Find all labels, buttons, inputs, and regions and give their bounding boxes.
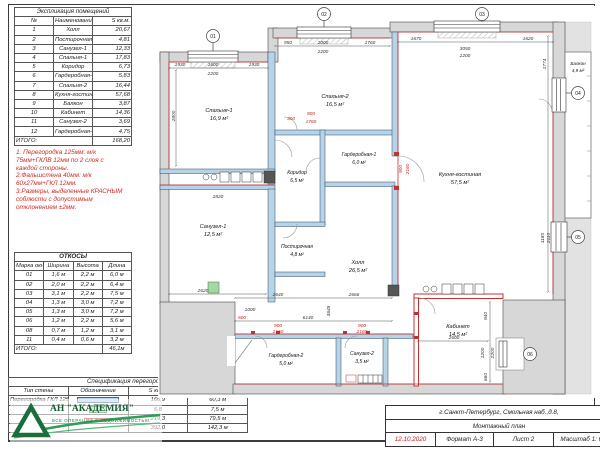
table-row: 2Постирочная4,81 (15, 35, 132, 44)
table-total-row: ИТОГО: 46,1м (15, 344, 132, 353)
svg-text:1180: 1180 (540, 233, 546, 244)
svg-text:Коридор: Коридор (287, 170, 307, 176)
svg-text:1930: 1930 (175, 62, 186, 68)
note-line: соблюсти с допустимым (16, 196, 162, 204)
svg-text:300: 300 (287, 116, 295, 122)
svg-text:26,5 м²: 26,5 м² (348, 268, 368, 274)
svg-text:3645: 3645 (326, 305, 332, 316)
drawing-sheet: { "explication": { "title": "Экспликация… (0, 0, 600, 450)
table-title-row: Экспликация помещений (15, 8, 132, 17)
svg-text:1620: 1620 (523, 36, 534, 42)
svg-text:500: 500 (238, 315, 246, 321)
title-block-date: 12.10.2020 (386, 433, 436, 446)
svg-text:2160: 2160 (272, 329, 284, 335)
title-block-sheet: Лист 2 (494, 433, 554, 446)
svg-text:06: 06 (527, 352, 533, 358)
svg-text:2110: 2110 (546, 233, 552, 245)
window-03 (434, 21, 500, 32)
svg-text:2160: 2160 (405, 163, 411, 175)
note-line: 60х27мм+ГКЛ 12мм. (16, 180, 162, 188)
svg-text:4,8 м²: 4,8 м² (290, 252, 304, 258)
note-line: 2.Фальшстена 40мм: м/к (16, 172, 162, 180)
note-line: каждой стороны. (16, 165, 162, 173)
svg-text:2160: 2160 (356, 329, 368, 335)
svg-text:2200: 2200 (317, 49, 329, 55)
table-row: 4Спальня-117,83 (15, 53, 132, 62)
svg-text:1760: 1760 (306, 119, 317, 125)
svg-text:Спальня-1: Спальня-1 (205, 108, 232, 114)
svg-text:2640: 2640 (272, 292, 284, 298)
svg-text:6,0 м²: 6,0 м² (352, 160, 366, 166)
svg-text:1600: 1600 (208, 62, 219, 68)
svg-text:04: 04 (575, 91, 581, 97)
agency-logo: АН "АКАДЕМИЯ" ВСЕ ОПЕРАЦИИ С НЕДВИЖИМОСТ… (10, 399, 162, 442)
svg-text:16,9 м²: 16,9 м² (210, 116, 229, 122)
note-line: 1. Перегородка 125мм: м/к (16, 149, 162, 157)
svg-text:3,5 м²: 3,5 м² (355, 359, 369, 365)
svg-text:Гардеробная-2: Гардеробная-2 (269, 353, 304, 359)
table-row: 011,6 м2,2 м6,0 м (15, 271, 132, 280)
table-row: 6Гардеробная-15,83 (15, 72, 132, 81)
svg-text:Постирочная: Постирочная (281, 244, 313, 250)
slopes-title: ОТКОСЫ (15, 253, 132, 262)
svg-text:2820: 2820 (212, 194, 224, 200)
explication-table: Экспликация помещений № Наименование S к… (14, 7, 132, 146)
svg-text:3050: 3050 (460, 46, 471, 52)
table-row: 041,3 м3,0 м7,2 м (15, 298, 132, 307)
title-block-bottom-row: 12.10.2020 Формат А-3 Лист 2 Масштаб 1: … (386, 433, 600, 446)
table-header-row: Марка окна Ширина Высота Длина (15, 262, 132, 271)
note-line: отклонением ±2мм. (16, 204, 162, 212)
title-block-plan-name: Монтажный план (386, 420, 600, 433)
note-line: 3.Размеры, выделенные КРАСНЫМ (16, 188, 162, 196)
title-block-scale: Масштаб 1: 60 (554, 433, 600, 446)
svg-text:Кабинет: Кабинет (446, 324, 470, 330)
svg-text:4,9 м²: 4,9 м² (572, 68, 585, 73)
svg-text:Санузел-1: Санузел-1 (200, 224, 227, 230)
svg-text:Санузел-2: Санузел-2 (350, 351, 374, 357)
logo-tagline: ВСЕ ОПЕРАЦИИ С НЕДВИЖИМОСТЬЮ (52, 418, 150, 423)
table-row: 8Кухня-гостиная57,68 (15, 90, 132, 99)
window-05 (551, 222, 567, 252)
svg-text:Балкон: Балкон (570, 61, 586, 66)
balcony-outline (565, 52, 591, 218)
svg-text:03: 03 (479, 12, 485, 18)
table-row: 3Санузел-112,33 (15, 44, 132, 53)
svg-text:2000: 2000 (317, 40, 329, 46)
svg-text:05: 05 (575, 235, 581, 241)
svg-text:950: 950 (284, 40, 292, 46)
table-row: 061,2 м2,2 м5,6 м (15, 317, 132, 326)
table-title-row: ОТКОСЫ (15, 253, 132, 262)
logo-name: АН "АКАДЕМИЯ" (50, 404, 134, 414)
svg-text:2620: 2620 (197, 288, 209, 294)
red-notes: 1. Перегородка 125мм: м/к 75мм+ГКЛВ 12мм… (16, 149, 162, 211)
window-06 (496, 338, 524, 370)
table-row: 5Коридор6,73 (15, 63, 132, 72)
svg-text:Кухня-гостиная: Кухня-гостиная (439, 172, 481, 178)
table-row: 051,3 м3,0 м7,2 м (15, 308, 132, 317)
table-row: 9Балкон3,87 (15, 99, 132, 108)
window-02 (297, 27, 351, 38)
svg-text:2666: 2666 (348, 292, 360, 298)
svg-text:6140: 6140 (303, 315, 314, 321)
window-01 (188, 51, 238, 62)
table-row: 7Спальня-216,44 (15, 81, 132, 90)
table-row: 10Кабинет14,36 (15, 109, 132, 118)
window-04 (552, 78, 566, 112)
svg-text:Гардеробная-1: Гардеробная-1 (342, 152, 377, 158)
slopes-table: ОТКОСЫ Марка окна Ширина Высота Длина 01… (14, 252, 132, 354)
svg-text:900: 900 (358, 323, 366, 329)
table-row: 1Холл20,67 (15, 26, 132, 35)
title-block-address: г.Санкт-Петербург, Смольная наб.,д.8, (386, 406, 600, 420)
title-block-format: Формат А-3 (436, 433, 494, 446)
svg-text:660: 660 (483, 373, 489, 381)
svg-text:2800: 2800 (171, 110, 177, 122)
table-row: 033,1 м2,2 м7,5 м (15, 289, 132, 298)
svg-text:900: 900 (307, 111, 315, 117)
explication-title: Экспликация помещений (15, 8, 132, 17)
table-row: 12Гардеробная-24,75 (15, 127, 132, 136)
svg-text:900: 900 (274, 323, 282, 329)
svg-text:900: 900 (398, 165, 404, 173)
svg-text:1930: 1930 (249, 62, 260, 68)
title-block: г.Санкт-Петербург, Смольная наб.,д.8, Мо… (385, 405, 600, 447)
table-row: 080,7 м1,2 м3,1 м (15, 326, 132, 335)
svg-text:16,5 м²: 16,5 м² (326, 102, 345, 108)
svg-text:57,5 м²: 57,5 м² (451, 180, 470, 186)
svg-text:Спальня-2: Спальня-2 (321, 94, 349, 100)
note-line: 75мм+ГКЛВ 12мм по 2 слоя с (16, 157, 162, 165)
table-total-row: ИТОГО: 168,20 (15, 136, 132, 145)
svg-text:1760: 1760 (365, 40, 376, 46)
svg-text:5,0 м²: 5,0 м² (279, 361, 293, 367)
svg-text:2200: 2200 (490, 347, 496, 359)
floor-plan: 1930 1600 2200 1930 950 2000 2200 1760 1… (158, 6, 595, 398)
svg-text:940: 940 (483, 312, 489, 320)
table-header-row: № Наименование S кв.м. (15, 17, 132, 26)
svg-text:6,5 м²: 6,5 м² (290, 178, 304, 184)
svg-text:2200: 2200 (459, 53, 471, 59)
svg-text:1200: 1200 (480, 347, 486, 358)
svg-text:12,5 м²: 12,5 м² (204, 232, 223, 238)
svg-text:02: 02 (321, 12, 327, 18)
table-row: 11Санузел-23,69 (15, 118, 132, 127)
svg-text:2200: 2200 (207, 71, 219, 77)
svg-text:1670: 1670 (411, 36, 422, 42)
table-row: 022,0 м2,2 м6,4 м (15, 280, 132, 289)
table-row: 110,4 м0,6 м3,2 м (15, 335, 132, 344)
svg-text:14,5 м²: 14,5 м² (449, 332, 468, 338)
svg-text:1774: 1774 (542, 58, 548, 69)
svg-text:Холл: Холл (351, 260, 366, 266)
svg-text:01: 01 (210, 34, 216, 40)
svg-text:1000: 1000 (245, 307, 256, 313)
